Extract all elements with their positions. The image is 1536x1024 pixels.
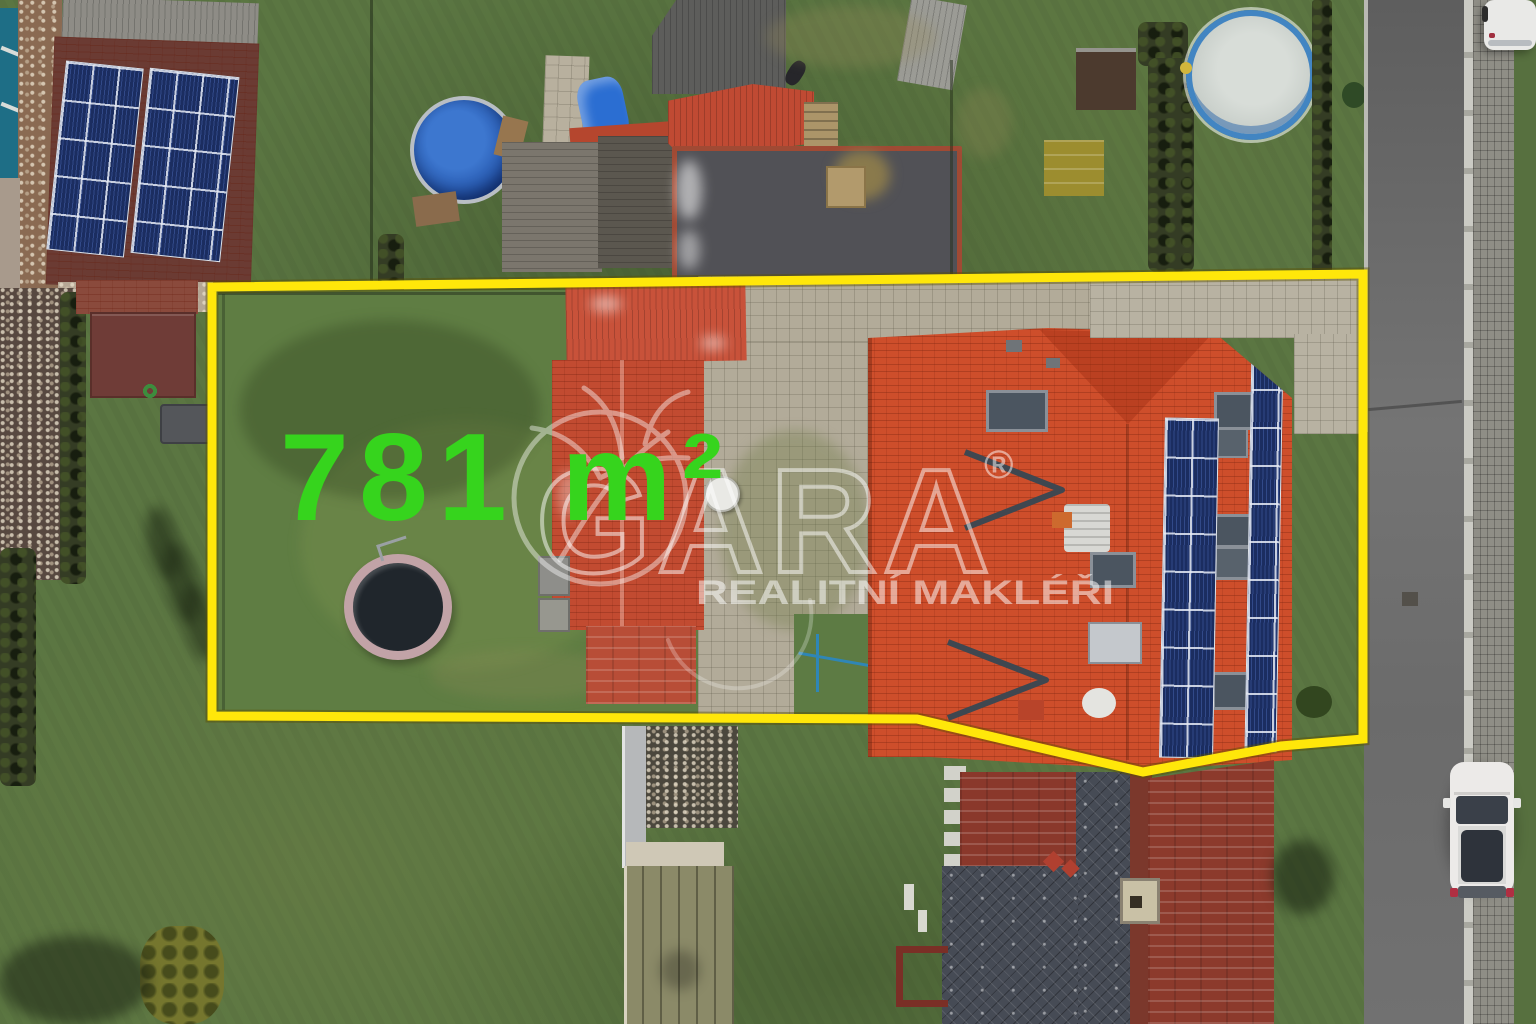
watermark-registered-icon: ® [984,443,1013,487]
aerial-photo: GARA ® REALITNÍ MAKLÉŘI 781 m² [0,0,1536,1024]
area-label: 781 m² [280,416,733,540]
gara-logo-arc [668,600,811,688]
watermark: GARA ® REALITNÍ MAKLÉŘI [0,0,1536,1024]
watermark-tagline: REALITNÍ MAKLÉŘI [696,574,1114,612]
